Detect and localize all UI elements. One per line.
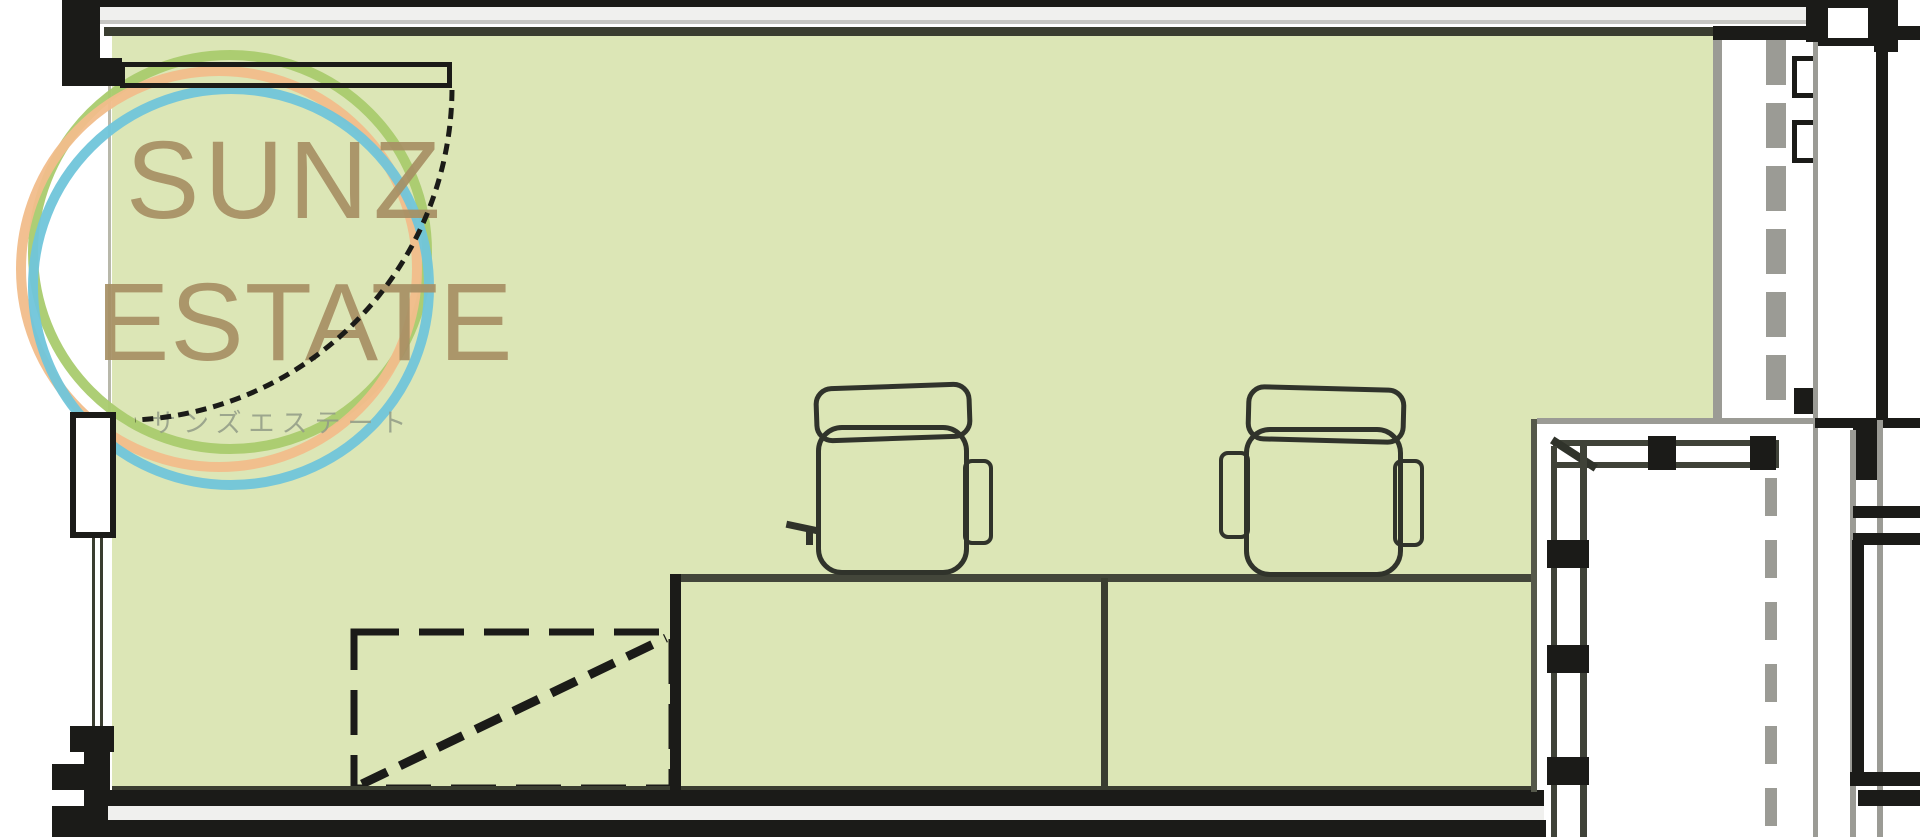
junction-top-notch (1828, 8, 1868, 38)
dashed-line-lower (1765, 478, 1777, 837)
left-bottom-stub (70, 726, 114, 752)
junction-bot-a (1850, 772, 1920, 786)
room-lower-right-edge (1531, 419, 1537, 792)
chair-left-seat (816, 425, 969, 575)
storage-diagonal (362, 638, 666, 784)
bottom-wall-outer (52, 820, 1546, 837)
bottom-wall-gap (108, 806, 1544, 820)
corridor-line (1813, 40, 1818, 837)
window-mullion-t2 (1750, 436, 1776, 470)
top-left-corner-step (96, 58, 122, 86)
balcony-wall-h (1815, 418, 1920, 428)
window-mullion-l2 (1547, 645, 1589, 673)
chair-right-armrest-right (1393, 459, 1424, 547)
floor-plan: SUNZ ESTATE サンズエステート (0, 0, 1920, 837)
top-wall-outer (62, 0, 1822, 7)
junction-bot-b (1858, 790, 1920, 806)
junction-mid-b (1853, 533, 1920, 545)
chair-right-armrest-left (1219, 451, 1250, 539)
window-mullion-t1 (1648, 436, 1676, 470)
junction-mid-a (1853, 506, 1920, 518)
junction-top-bar2 (1892, 26, 1920, 40)
top-wall-gap (62, 7, 1822, 20)
room-right-wall (1713, 36, 1722, 420)
bottom-left-corner (52, 764, 98, 790)
chair-right-seat (1244, 427, 1403, 577)
top-wall-grayline (62, 20, 1822, 24)
bottom-wall-inner (108, 790, 1544, 806)
notch-wall-h (1537, 418, 1817, 424)
window-mullion-l1 (1547, 540, 1589, 568)
door-panel (120, 62, 452, 88)
chair-left-armrest-right (963, 459, 993, 545)
left-window-line-a (92, 538, 95, 730)
black-wall-lower (1852, 540, 1864, 785)
desk-left-edge (670, 574, 681, 792)
top-left-corner (62, 0, 100, 86)
desk-divider (1101, 578, 1108, 790)
right-wall-upper (1876, 0, 1888, 420)
top-wall-inner (104, 27, 1718, 36)
window-mullion-l3 (1547, 757, 1589, 785)
chair-left-lever-tip (806, 527, 813, 545)
left-window-line-b (100, 538, 103, 730)
window-pillar (70, 412, 116, 538)
door-swing-arc (135, 90, 452, 420)
sliding-door-dashed-track (1766, 40, 1786, 412)
